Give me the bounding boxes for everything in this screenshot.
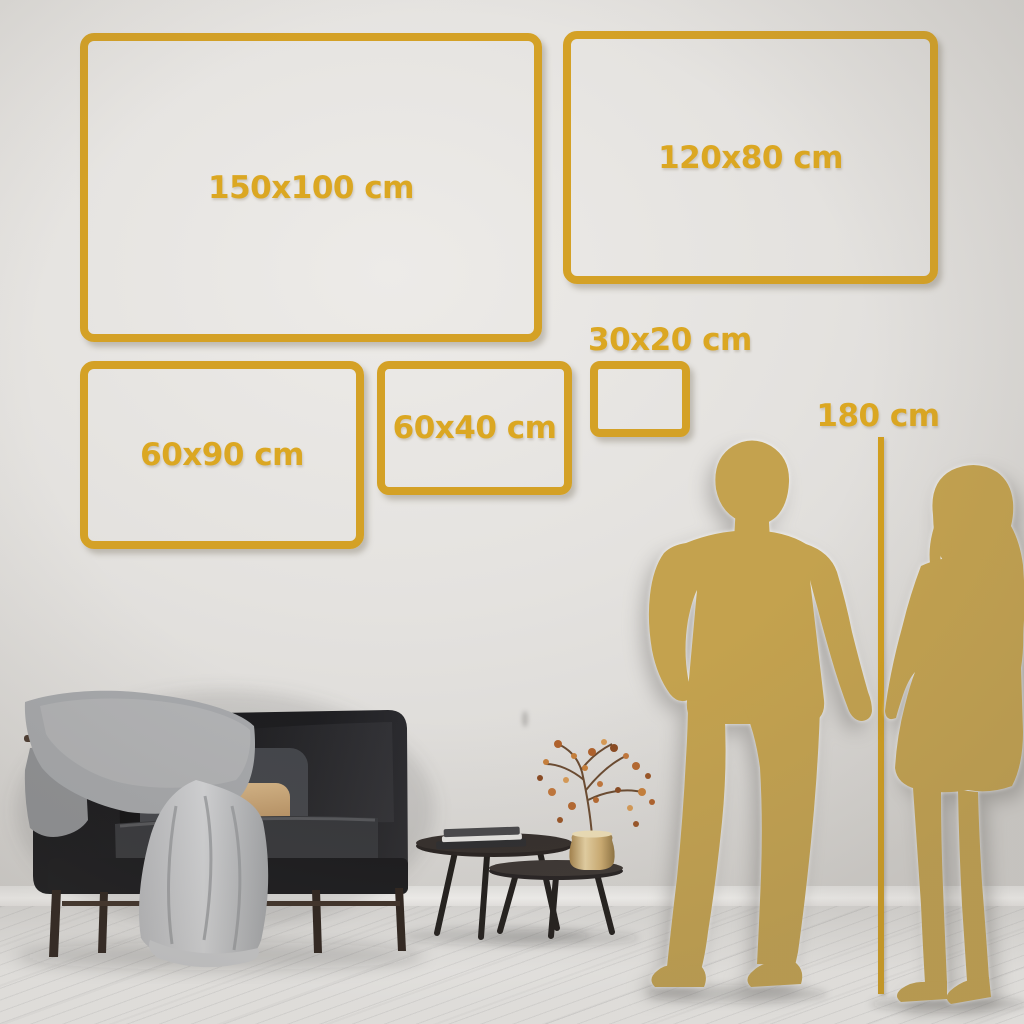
vase bbox=[569, 833, 614, 870]
wall-art-size-guide: 150x100 cm 120x80 cm 60x90 cm 60x40 cm 3… bbox=[0, 0, 1024, 1024]
books bbox=[436, 826, 527, 849]
coffee-table-large bbox=[416, 826, 572, 937]
woman-silhouette bbox=[885, 465, 1024, 1004]
sofa bbox=[24, 691, 408, 967]
berries bbox=[537, 739, 655, 827]
room-scene bbox=[0, 0, 1024, 1024]
man-silhouette bbox=[649, 441, 872, 988]
